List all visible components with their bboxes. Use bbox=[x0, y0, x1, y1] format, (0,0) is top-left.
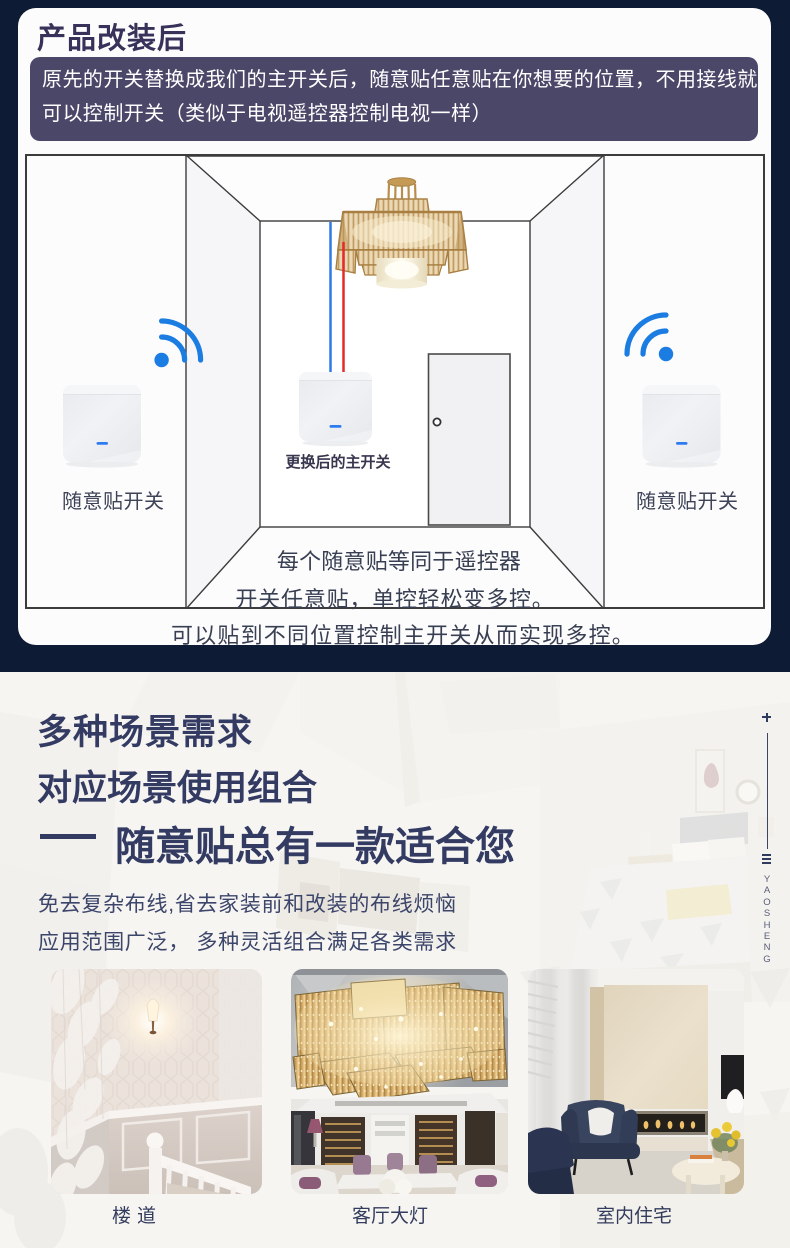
svg-text:更换后的主开关: 更换后的主开关 bbox=[285, 453, 390, 471]
